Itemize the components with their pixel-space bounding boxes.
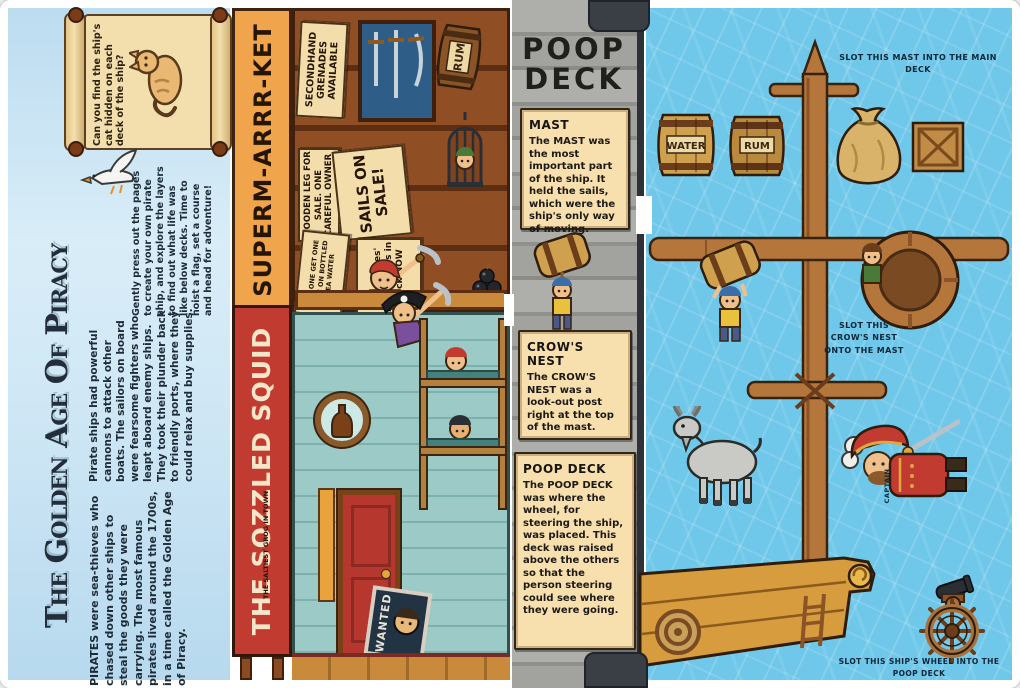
note-crows-nest-body: The CROW'S NEST was a look-out post righ… [527,372,623,435]
note-crows-nest: CROW'S NEST The CROW'S NEST was a look-o… [518,330,632,440]
captain-label: CAPTAIN [883,459,893,513]
press-out-sea-panel: SLOT THIS MAST INTO THE MAIN DECK WATER [646,8,1012,680]
scroll-roll-left [64,12,86,152]
sign-secondhand-grenades: SECONDHAND GRENADES AVAILABLE [296,21,349,119]
pirate-carrying-barrel [686,236,774,344]
paragraph-press-out: Gently press out the pages to create you… [131,164,219,316]
paragraph-pirate-ships: Pirate ships had powerful cannons to att… [88,300,200,482]
poop-deck-hull-piece [638,532,882,674]
ships-wheel-piece [918,598,986,664]
sign-sails-on-sale-text: SAILS ON SALE! [351,148,394,237]
poop-deck-sheet: POOP DECK MAST The MAST was the most imp… [512,0,644,688]
rum-barrel-label: RUM [744,141,770,152]
bottle-icon [327,400,357,440]
wanted-poster: WANTED [363,585,432,663]
crate-piece [910,120,966,174]
note-poop-deck-heading: POOP DECK [523,462,627,476]
note-poop-deck: POOP DECK The POOP DECK was where the wh… [514,452,636,650]
goat-piece [662,406,766,506]
scroll-roll-right [210,12,232,152]
press-out-notch [636,196,652,234]
hanging-pirate-with-barrel [516,228,608,332]
sign-secondhand-grenades-text: SECONDHAND GRENADES AVAILABLE [303,23,341,117]
note-crows-nest-heading: CROW'S NEST [527,340,623,368]
scroll-knob [212,141,228,157]
porthole [315,393,369,447]
sheet-tab-top [588,0,650,32]
door-panel [351,505,391,567]
caged-pirate [443,112,487,192]
sheet-tab-bottom [584,652,648,688]
note-mast-body: The MAST was the most important part of … [529,136,621,236]
intro-panel: The Golden Age Of Piracy Pirate ships ha… [8,8,230,680]
scroll-question: Can you find the ship's cat hidden on ea… [92,18,127,146]
press-out-notch [504,294,514,326]
note-mast-heading: MAST [529,118,621,132]
supermarket-sign-label: SUPERM-ARRR-KET [236,14,288,306]
supermarket-panel: SUPERM-ARRR-KET SECONDHAND GRENADES AVAI… [232,8,510,312]
tavern-panel: THE SOZZLED SQUID THE SALTIEST GROG [232,305,510,680]
ships-cat-illustration [129,42,185,122]
sack-piece [830,104,908,192]
scroll-knob [212,7,228,23]
note-poop-deck-body: The POOP DECK was where the wheel, for s… [523,480,627,618]
slot-label-crows-nest: SLOT THIS CROW'S NEST ONTO THE MAST [824,320,904,357]
scroll-note: Can you find the ship's cat hidden on ea… [64,12,232,152]
captain-piece [838,414,974,526]
grog-sign-text: THE SALTIEST GROG IN TOWN [262,488,276,602]
rum-barrel-shelf: RUM [431,19,486,95]
sign-post [240,657,252,680]
water-barrel-label: WATER [667,141,706,152]
scroll-knob [68,7,84,23]
crows-nest-piece [850,222,962,334]
bunk-beds [418,317,508,512]
water-barrel-piece: WATER [654,110,718,180]
sign-wooden-leg-text: WOODEN LEG FOR SALE. ONE CAREFUL OWNER [303,150,335,240]
paragraph-pirates: PIRATES were sea-thieves who chased down… [88,488,200,686]
tavern-floor [292,653,510,680]
door-knob [381,569,391,579]
poop-deck-title: POOP DECK [522,34,626,95]
sign-post [272,657,284,680]
weapons-window [358,20,436,122]
slot-label-wheel: SLOT THIS SHIP'S WHEEL INTO THE POOP DEC… [826,656,1012,679]
sign-sails-on-sale: SAILS ON SALE! [331,144,412,241]
rum-barrel-piece: RUM [726,112,788,180]
page-title: The Golden Age Of Piracy [34,186,82,686]
swords-display-icon [362,24,432,118]
note-mast: MAST The MAST was the most important par… [520,108,630,230]
pirate-book-spread: The Golden Age Of Piracy Pirate ships ha… [0,0,1020,688]
grog-sign-strip [318,488,335,602]
